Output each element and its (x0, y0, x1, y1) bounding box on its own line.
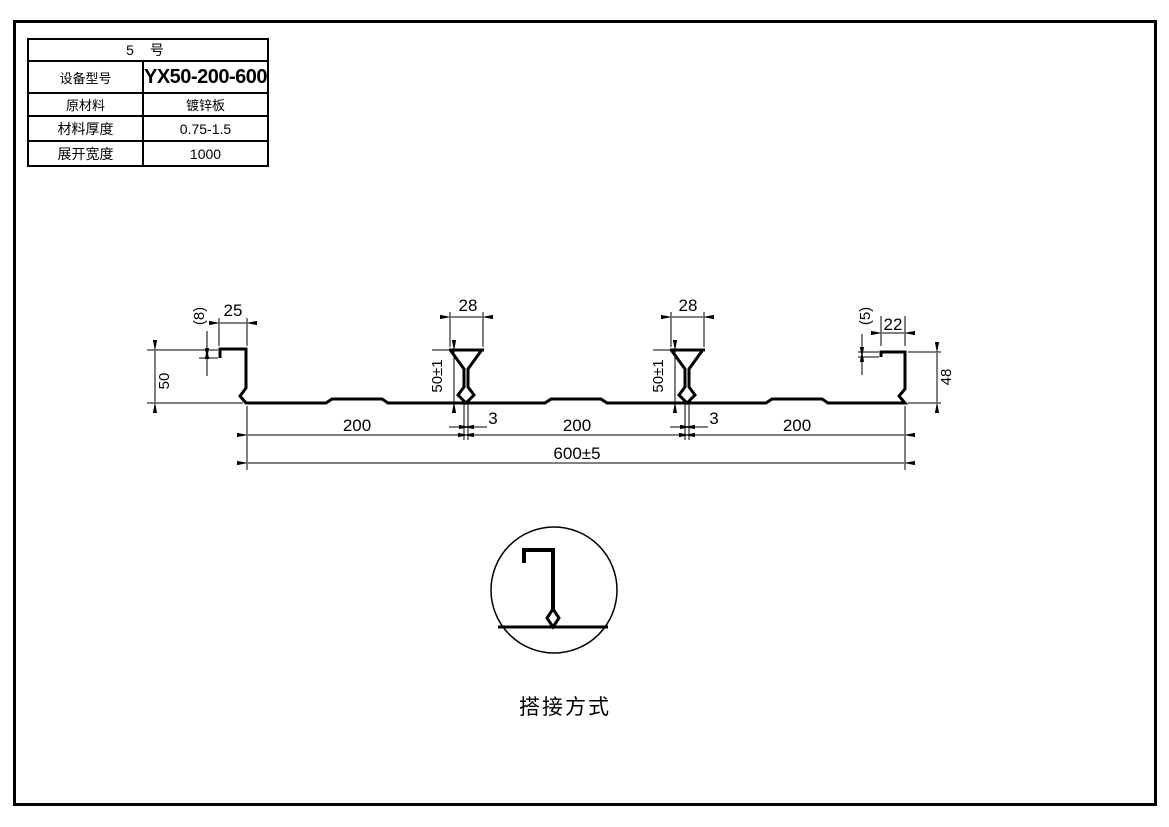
spec-row-model: 设备型号 YX50-200-600 (28, 61, 268, 93)
spec-row-title: 5 号 (28, 39, 268, 61)
sheet-number: 5 号 (28, 39, 268, 61)
thickness-value: 0.75-1.5 (143, 116, 268, 141)
unfold-width-label: 展开宽度 (28, 141, 143, 166)
spec-table: 5 号 设备型号 YX50-200-600 原材料 镀锌板 材料厚度 0.75-… (27, 38, 269, 167)
model-value: YX50-200-600 (143, 61, 268, 93)
spec-row-thickness: 材料厚度 0.75-1.5 (28, 116, 268, 141)
material-value: 镀锌板 (143, 93, 268, 116)
material-label: 原材料 (28, 93, 143, 116)
drawing-sheet: 5 号 设备型号 YX50-200-600 原材料 镀锌板 材料厚度 0.75-… (0, 0, 1169, 827)
spec-row-material: 原材料 镀锌板 (28, 93, 268, 116)
thickness-label: 材料厚度 (28, 116, 143, 141)
spec-row-width: 展开宽度 1000 (28, 141, 268, 166)
unfold-width-value: 1000 (143, 141, 268, 166)
model-label: 设备型号 (28, 61, 143, 93)
